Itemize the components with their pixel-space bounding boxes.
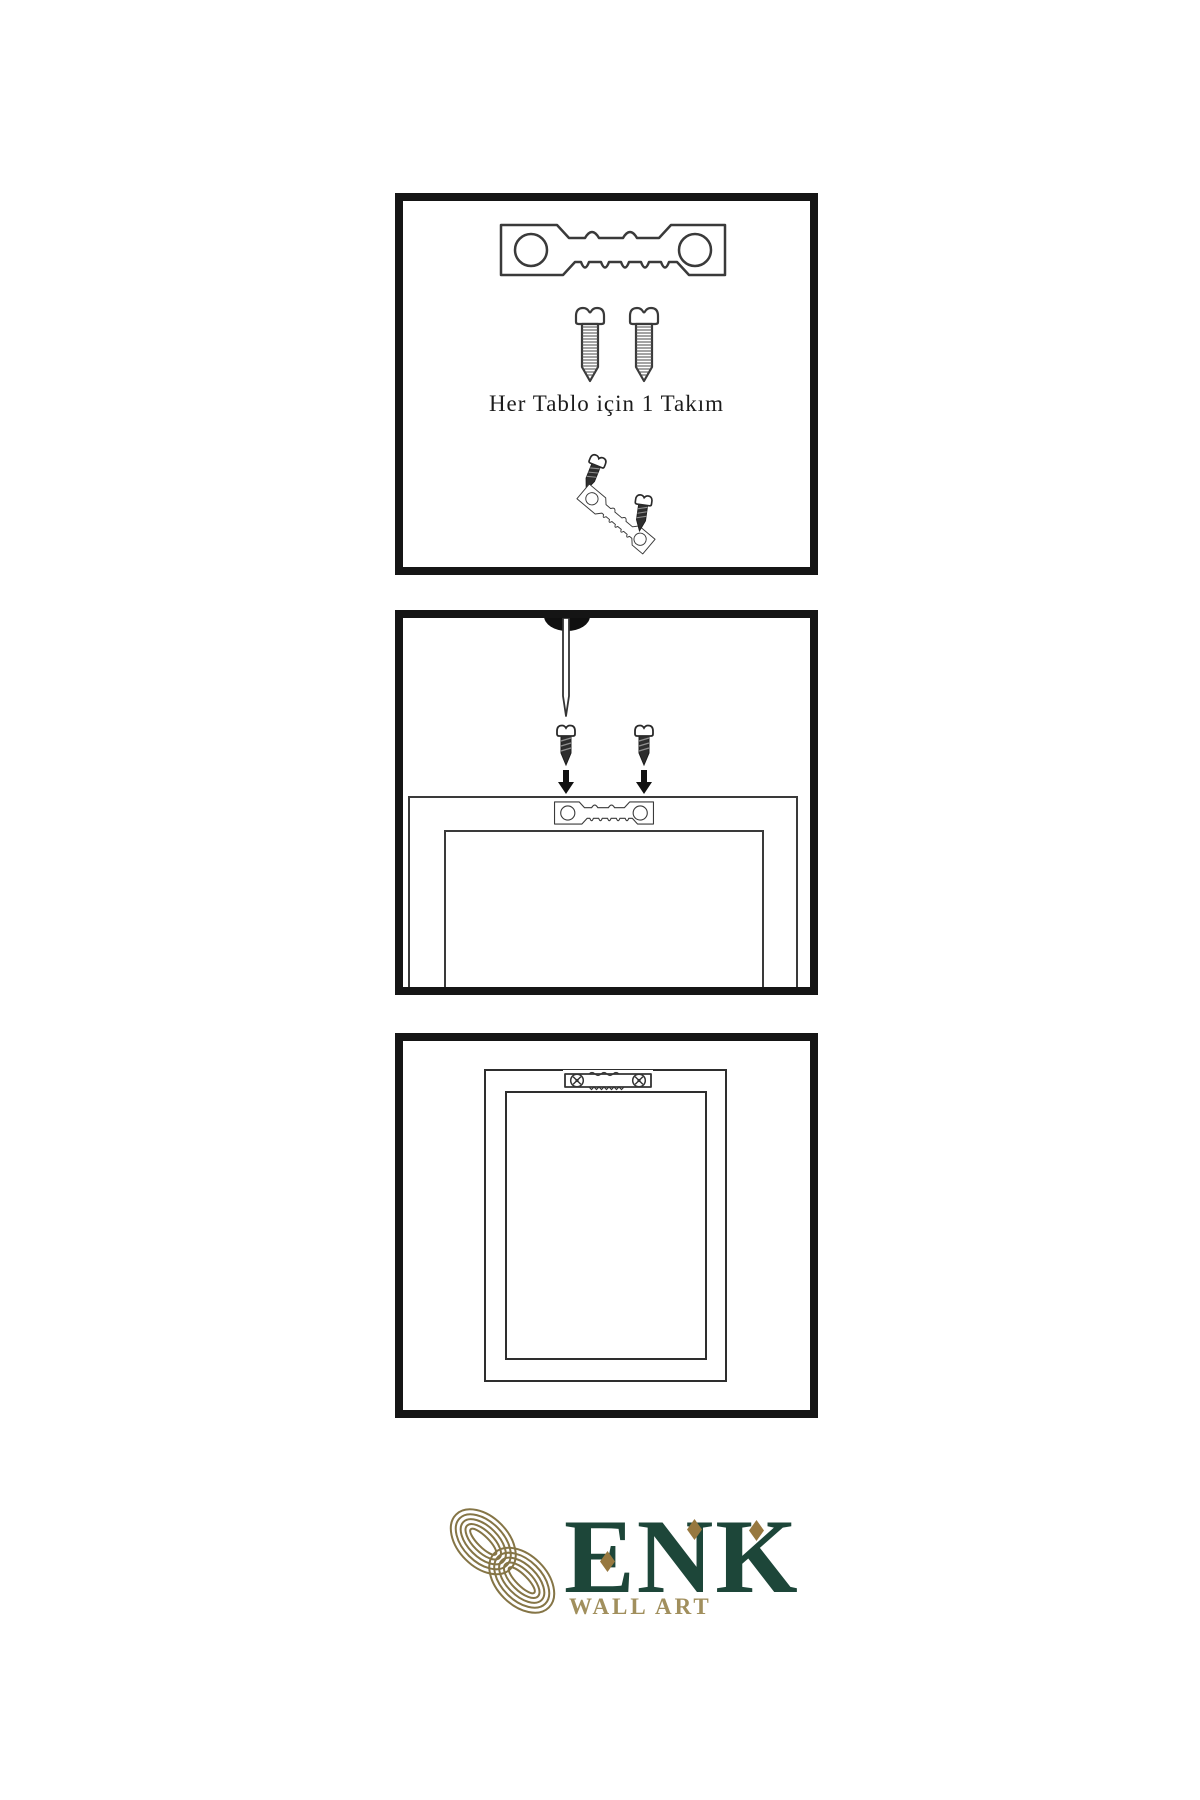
step2-panel [395, 610, 818, 995]
brand-tagline: WALL ART [569, 1594, 829, 1620]
step3-panel [395, 1033, 818, 1418]
screw-icon [555, 723, 577, 767]
down-arrow-icon [636, 770, 652, 794]
sawtooth-hanger-icon [493, 221, 733, 279]
step1-panel: Her Tablo için 1 Takım [395, 193, 818, 575]
screw-icon [573, 305, 607, 383]
screw-icon [629, 492, 654, 534]
down-arrow-icon [558, 770, 574, 794]
nail-icon [558, 618, 574, 720]
instruction-sheet: { "panels": { "step1": { "caption": "Her… [0, 0, 1200, 1800]
step1-caption: Her Tablo için 1 Takım [403, 391, 810, 417]
sawtooth-hanger-icon [551, 799, 657, 827]
mounted-hanger-icon [563, 1070, 653, 1091]
screw-icon [627, 305, 661, 383]
screw-icon [633, 723, 655, 767]
frame-back-inner [444, 830, 764, 995]
knot-logo-icon [440, 1495, 565, 1627]
hung-frame-inner [505, 1091, 707, 1360]
